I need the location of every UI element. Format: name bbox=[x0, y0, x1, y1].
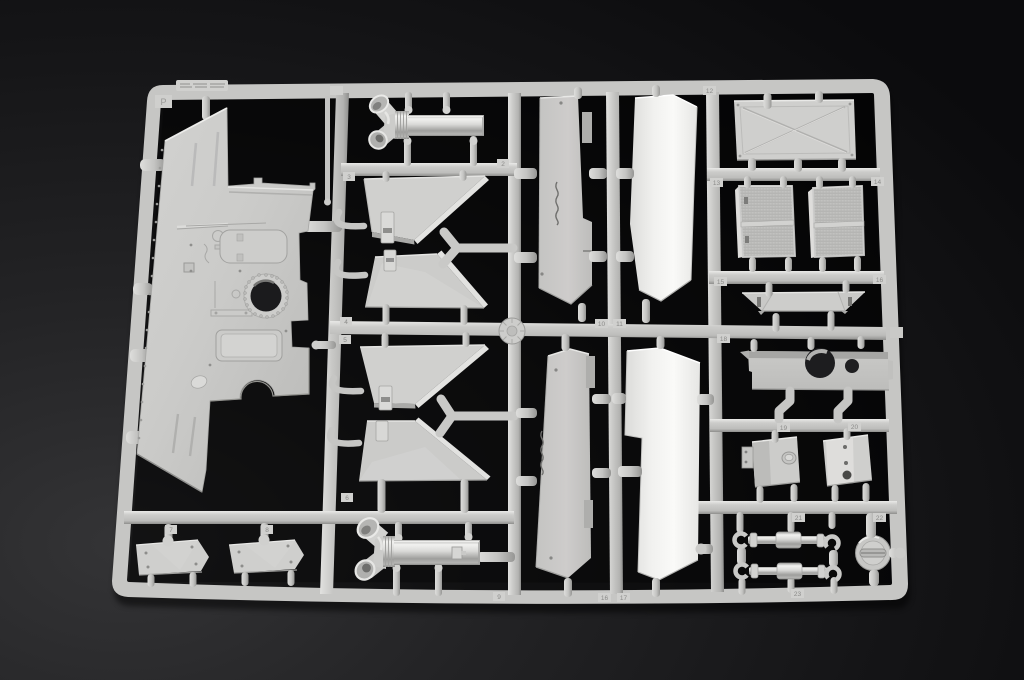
svg-text:17: 17 bbox=[620, 595, 628, 602]
svg-text:20: 20 bbox=[851, 424, 859, 431]
svg-text:22: 22 bbox=[876, 515, 884, 522]
svg-text:13: 13 bbox=[713, 180, 721, 187]
svg-text:4: 4 bbox=[344, 319, 348, 326]
svg-text:10: 10 bbox=[598, 321, 606, 328]
svg-text:23: 23 bbox=[794, 591, 802, 598]
svg-text:P: P bbox=[160, 97, 166, 107]
svg-text:18: 18 bbox=[720, 336, 728, 343]
svg-text:6: 6 bbox=[345, 495, 349, 502]
svg-text:2: 2 bbox=[501, 161, 505, 168]
svg-text:8: 8 bbox=[265, 527, 269, 534]
svg-text:16: 16 bbox=[601, 595, 609, 602]
svg-text:16: 16 bbox=[876, 277, 884, 284]
svg-text:5: 5 bbox=[343, 337, 347, 344]
svg-text:12: 12 bbox=[706, 88, 714, 95]
svg-text:7: 7 bbox=[169, 527, 173, 534]
svg-text:11: 11 bbox=[616, 321, 623, 328]
svg-text:14: 14 bbox=[874, 179, 882, 186]
svg-text:9: 9 bbox=[497, 594, 501, 601]
svg-text:21: 21 bbox=[795, 515, 803, 522]
svg-text:3: 3 bbox=[347, 174, 351, 181]
svg-text:19: 19 bbox=[780, 425, 788, 432]
svg-text:15: 15 bbox=[717, 279, 725, 286]
